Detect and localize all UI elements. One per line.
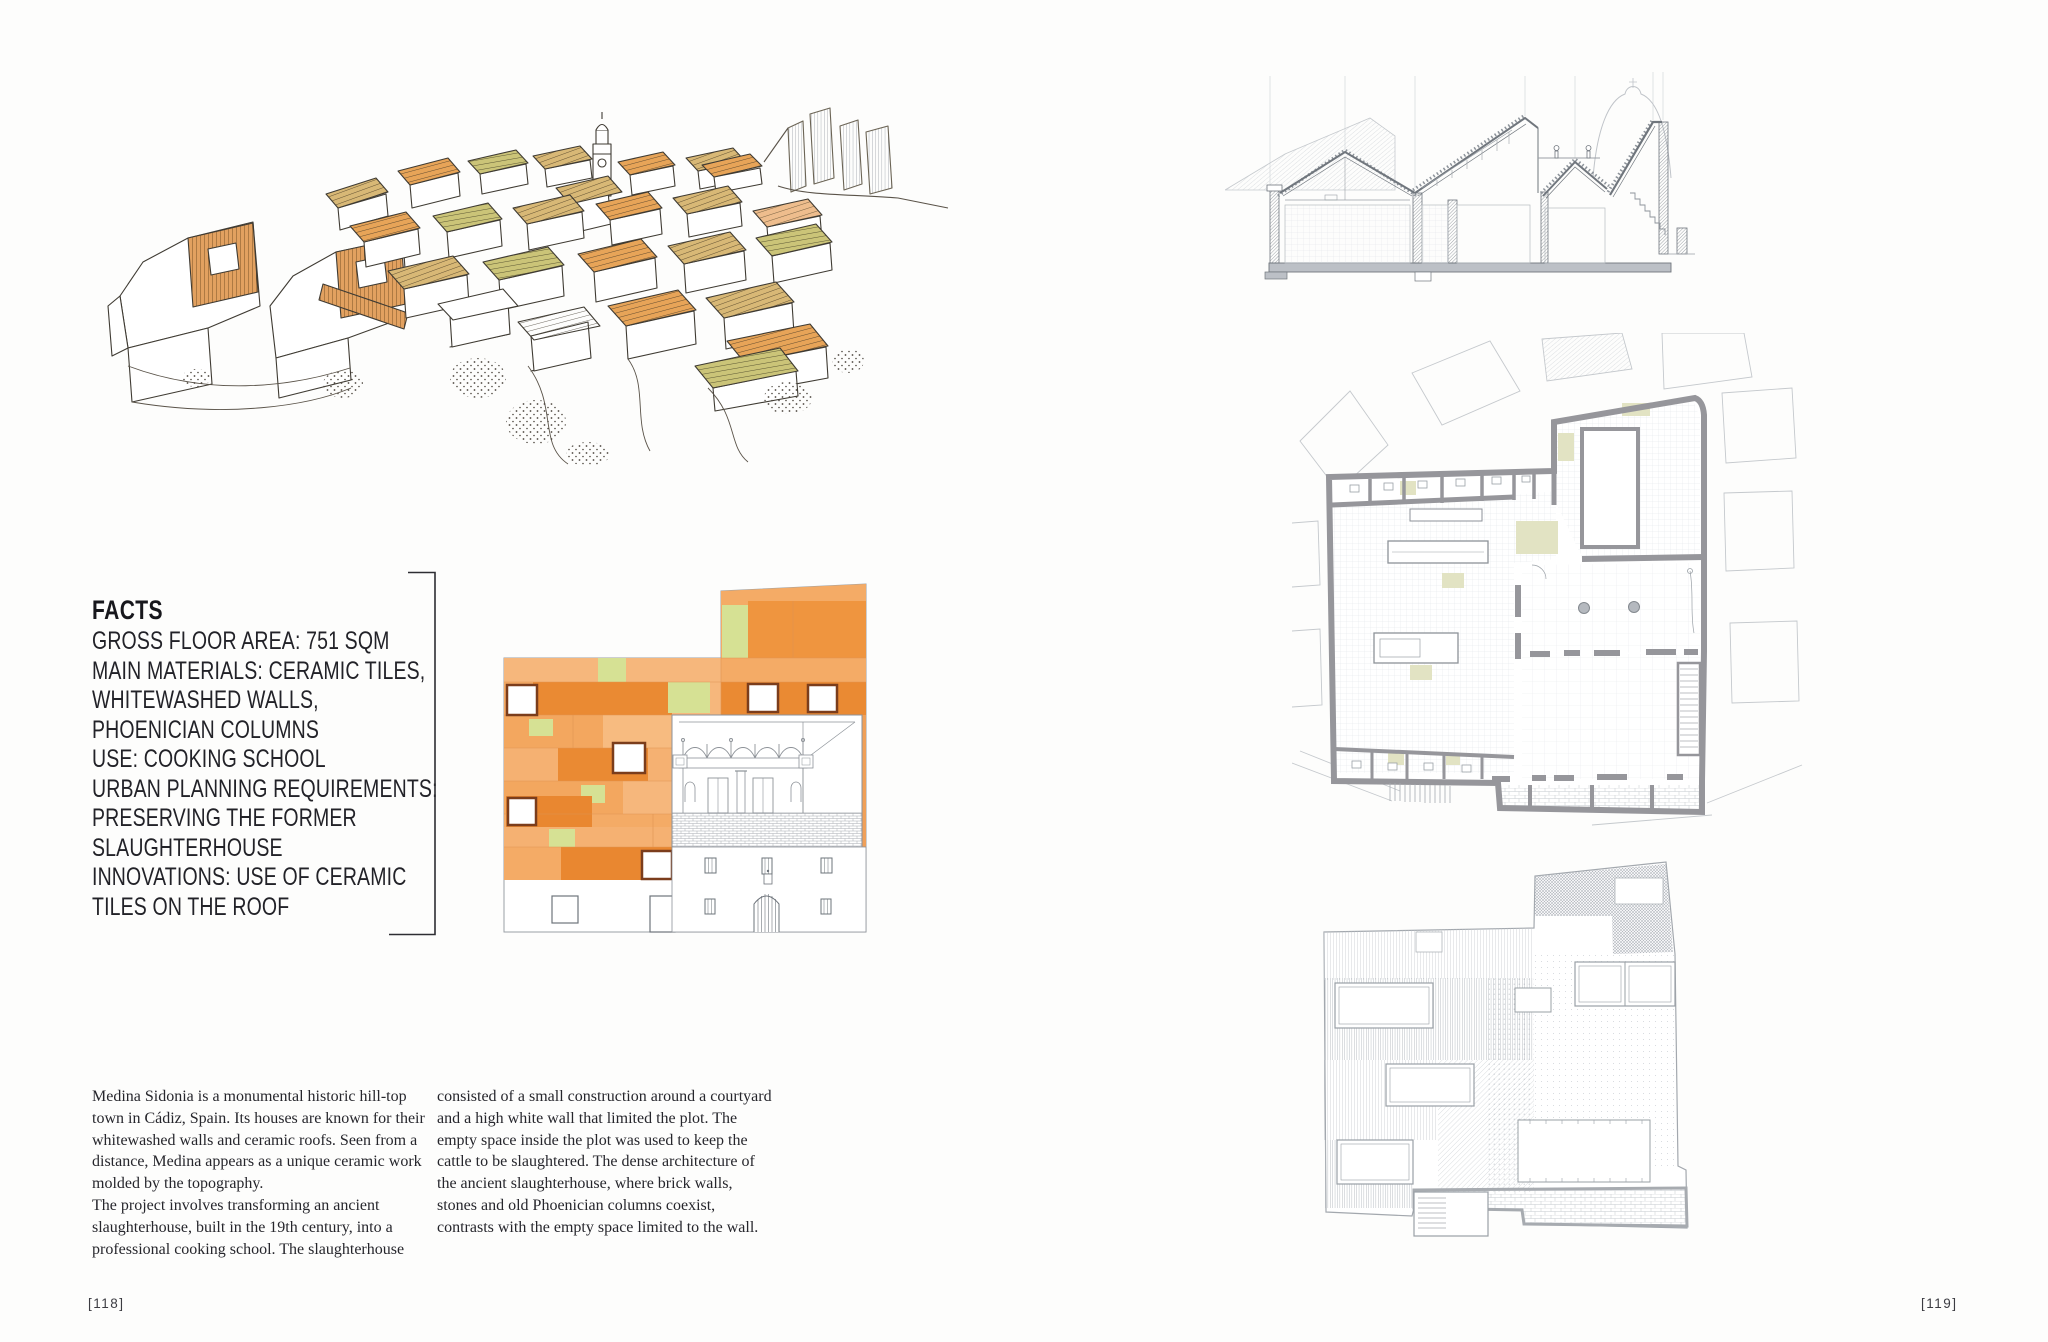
floor-plan-figure (1292, 333, 1812, 828)
facts-line: PHOENICIAN COLUMNS (92, 716, 420, 746)
roof-plan-figure (1318, 858, 1748, 1288)
body-paragraph: Medina Sidonia is a monumental historic … (92, 1086, 430, 1195)
facts-line: URBAN PLANNING REQUIREMENTS: (92, 775, 420, 805)
page-number-left: [118] (88, 1296, 125, 1311)
elevation-figure (503, 581, 869, 933)
town-sketch-figure (88, 66, 958, 466)
facts-line: WHITEWASHED WALLS, (92, 686, 420, 716)
body-paragraph: The project involves transforming an anc… (92, 1195, 430, 1260)
facts-line: MAIN MATERIALS: CERAMIC TILES, (92, 657, 420, 687)
roof-finials (1554, 146, 1591, 159)
facts-line: USE: COOKING SCHOOL (92, 745, 420, 775)
body-text-column-1: Medina Sidonia is a monumental historic … (92, 1086, 430, 1260)
book-spread: FACTS GROSS FLOOR AREA: 751 SQMMAIN MATE… (0, 0, 2048, 1342)
section-figure (1225, 58, 1800, 298)
facts-block: FACTS GROSS FLOOR AREA: 751 SQMMAIN MATE… (92, 594, 420, 922)
page-number-right: [119] (1921, 1296, 1958, 1311)
facts-line: TILES ON THE ROOF (92, 893, 420, 923)
facts-title: FACTS (92, 594, 420, 627)
facts-line: INNOVATIONS: USE OF CERAMIC (92, 863, 420, 893)
body-paragraph: consisted of a small construction around… (437, 1086, 775, 1239)
facts-line: SLAUGHTERHOUSE (92, 834, 420, 864)
facts-line: PRESERVING THE FORMER (92, 804, 420, 834)
facts-lines: GROSS FLOOR AREA: 751 SQMMAIN MATERIALS:… (92, 627, 420, 922)
facts-line: GROSS FLOOR AREA: 751 SQM (92, 627, 420, 657)
body-text-column-2: consisted of a small construction around… (437, 1086, 775, 1239)
facts-bracket-rule (388, 571, 440, 937)
